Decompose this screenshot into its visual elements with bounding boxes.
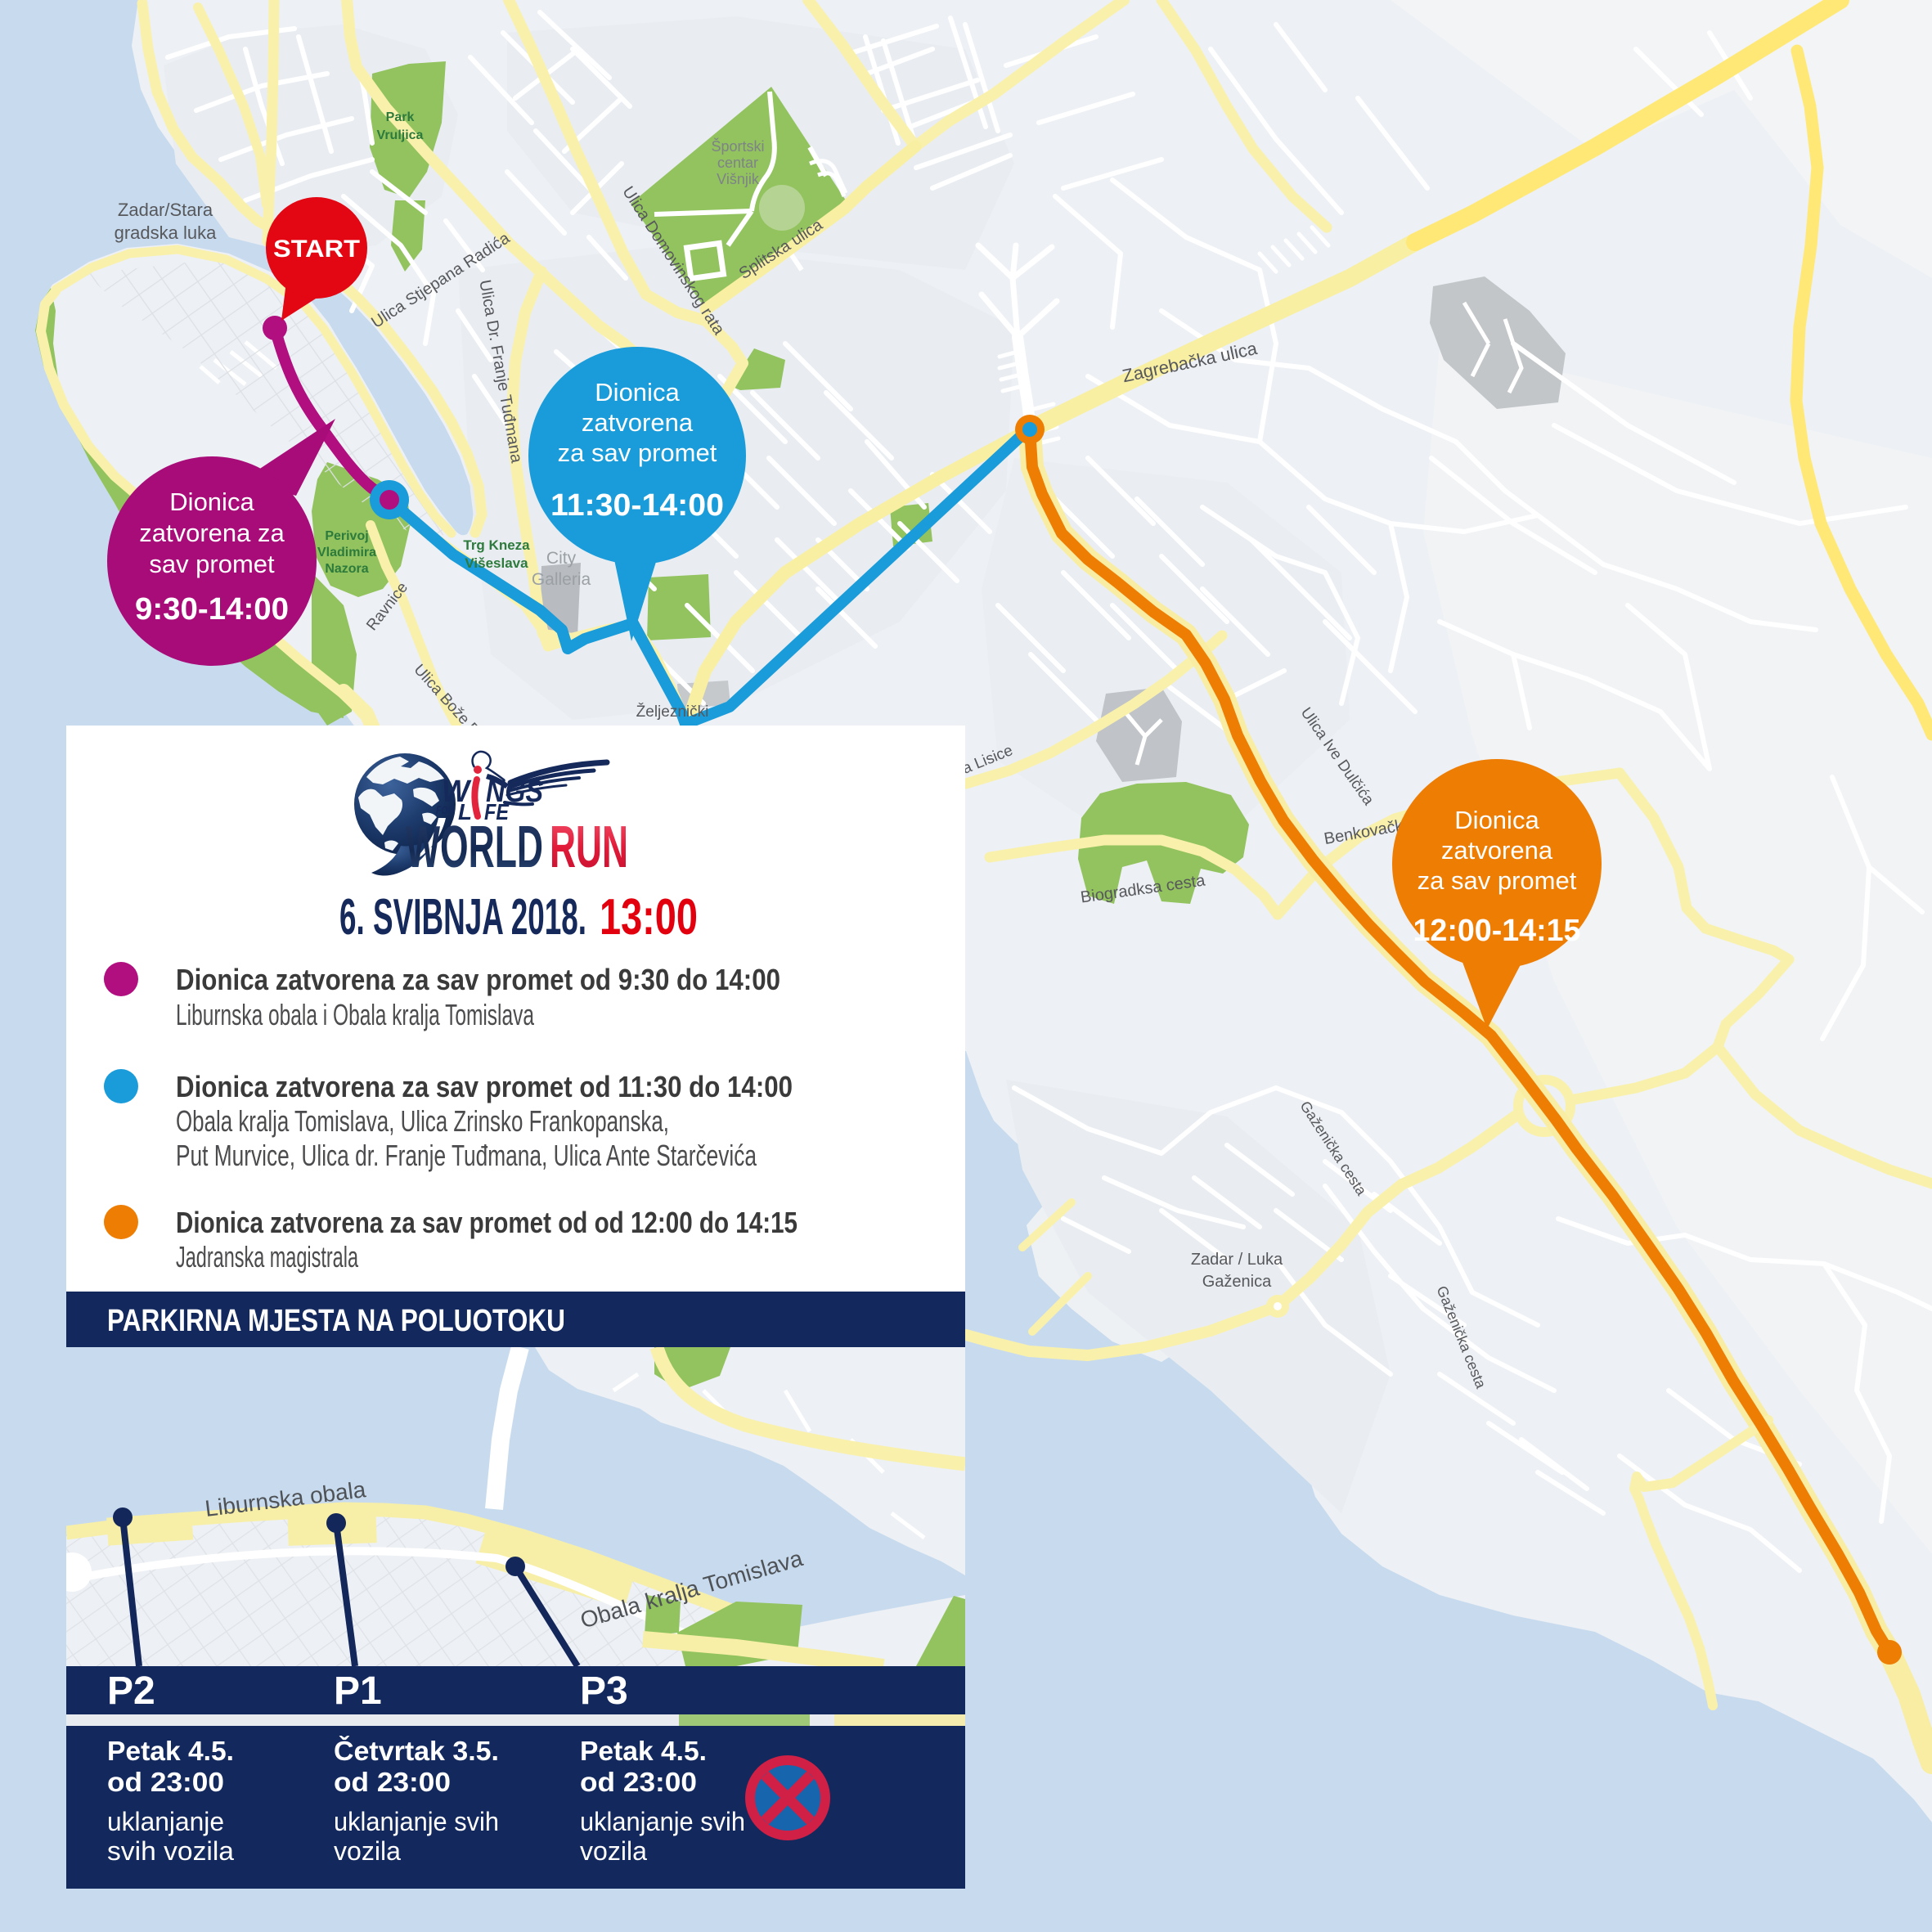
svg-text:uklanjanje svih: uklanjanje svih bbox=[580, 1807, 745, 1836]
svg-text:P2: P2 bbox=[107, 1669, 155, 1713]
svg-text:centar: centar bbox=[717, 155, 758, 171]
svg-text:6. SVIBNJA 2018.: 6. SVIBNJA 2018. bbox=[339, 889, 586, 946]
svg-text:uklanjanje svih: uklanjanje svih bbox=[334, 1807, 499, 1836]
svg-text:Vruljica: Vruljica bbox=[377, 128, 424, 142]
svg-text:svih vozila: svih vozila bbox=[107, 1836, 234, 1866]
svg-text:Dionica: Dionica bbox=[595, 378, 680, 407]
svg-text:Petak 4.5.: Petak 4.5. bbox=[580, 1736, 707, 1766]
svg-text:Park: Park bbox=[386, 110, 415, 124]
svg-text:od 23:00: od 23:00 bbox=[334, 1767, 451, 1797]
svg-text:Vladimira: Vladimira bbox=[317, 546, 376, 559]
svg-text:Željeznički: Željeznički bbox=[636, 703, 709, 721]
svg-text:uklanjanje: uklanjanje bbox=[107, 1807, 224, 1836]
svg-text:12:00-14:15: 12:00-14:15 bbox=[1413, 914, 1581, 948]
svg-text:Nazora: Nazora bbox=[325, 562, 368, 576]
svg-text:Perivoj: Perivoj bbox=[325, 529, 368, 543]
svg-text:P3: P3 bbox=[580, 1669, 628, 1713]
svg-text:Liburnska obala i Obala kralja: Liburnska obala i Obala kralja Tomislava bbox=[176, 998, 535, 1031]
svg-text:P1: P1 bbox=[334, 1669, 382, 1713]
svg-text:vozila: vozila bbox=[334, 1836, 401, 1866]
svg-text:13:00: 13:00 bbox=[600, 889, 698, 946]
svg-text:Dionica zatvorena za sav prome: Dionica zatvorena za sav promet od od 12… bbox=[176, 1206, 798, 1239]
svg-text:od 23:00: od 23:00 bbox=[107, 1767, 224, 1797]
svg-text:Gaženica: Gaženica bbox=[1202, 1273, 1272, 1291]
svg-text:Galleria: Galleria bbox=[532, 570, 591, 589]
svg-text:Dionica: Dionica bbox=[1454, 806, 1539, 834]
svg-text:City: City bbox=[546, 549, 577, 568]
svg-text:Petak 4.5.: Petak 4.5. bbox=[107, 1736, 234, 1766]
svg-text:vozila: vozila bbox=[580, 1836, 647, 1866]
svg-text:Dionica: Dionica bbox=[169, 487, 254, 516]
svg-text:Višeslava: Višeslava bbox=[465, 555, 528, 571]
svg-text:Dionica zatvorena za sav prome: Dionica zatvorena za sav promet od 11:30… bbox=[176, 1070, 793, 1103]
svg-text:Dionica zatvorena za sav prome: Dionica zatvorena za sav promet od 9:30 … bbox=[176, 963, 780, 996]
svg-text:START: START bbox=[273, 236, 360, 263]
svg-text:11:30-14:00: 11:30-14:00 bbox=[550, 488, 724, 523]
svg-text:PARKIRNA MJESTA NA POLUOTOKU: PARKIRNA MJESTA NA POLUOTOKU bbox=[107, 1304, 565, 1338]
svg-text:gradska luka: gradska luka bbox=[115, 222, 218, 243]
svg-text:zatvorena za: zatvorena za bbox=[139, 519, 285, 547]
svg-text:Zadar/Stara: Zadar/Stara bbox=[118, 200, 213, 220]
svg-text:Višnjik: Višnjik bbox=[717, 171, 760, 187]
svg-text:za sav promet: za sav promet bbox=[1418, 866, 1577, 895]
svg-text:RUN: RUN bbox=[550, 815, 628, 880]
svg-text:od 23:00: od 23:00 bbox=[580, 1767, 697, 1797]
svg-text:zatvorena: zatvorena bbox=[582, 408, 694, 437]
svg-text:Trg Kneza: Trg Kneza bbox=[463, 537, 530, 553]
svg-text:Put Murvice, Ulica dr. Franje: Put Murvice, Ulica dr. Franje Tuđmana, U… bbox=[176, 1139, 757, 1172]
svg-text:9:30-14:00: 9:30-14:00 bbox=[135, 592, 289, 627]
svg-text:zatvorena: zatvorena bbox=[1441, 836, 1553, 865]
svg-text:sav promet: sav promet bbox=[149, 550, 275, 578]
svg-text:za sav promet: za sav promet bbox=[558, 438, 717, 467]
svg-text:Športski: Športski bbox=[711, 137, 764, 155]
svg-text:Jadranska magistrala: Jadranska magistrala bbox=[176, 1240, 359, 1274]
svg-text:Zadar / Luka: Zadar / Luka bbox=[1191, 1251, 1283, 1269]
svg-text:Četvrtak 3.5.: Četvrtak 3.5. bbox=[334, 1735, 499, 1766]
svg-text:WORLD: WORLD bbox=[406, 815, 543, 880]
svg-text:Obala kralja Tomislava, Ulica: Obala kralja Tomislava, Ulica Zrinsko Fr… bbox=[176, 1104, 669, 1138]
